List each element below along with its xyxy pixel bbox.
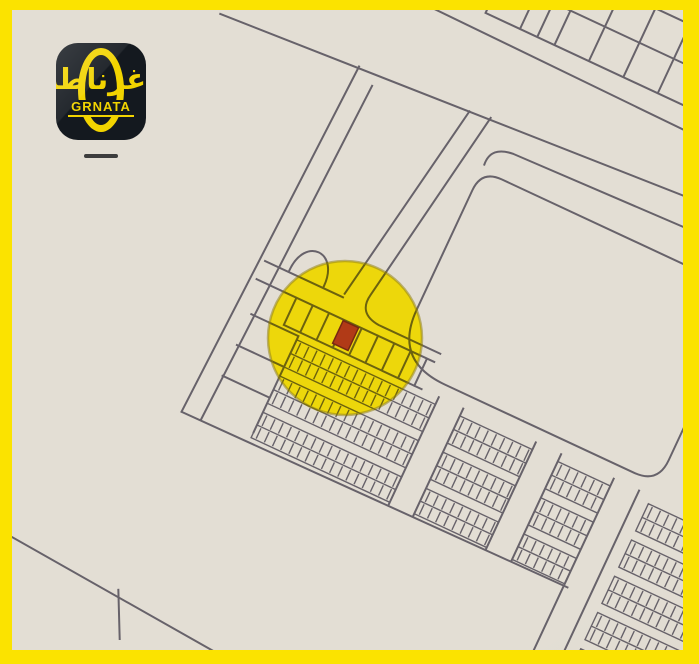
post-canvas: غرناطة GRNATA	[0, 0, 699, 664]
logo-dash	[84, 154, 118, 158]
grnata-logo: غرناطة GRNATA	[56, 43, 146, 140]
logo-gloss	[56, 43, 146, 140]
